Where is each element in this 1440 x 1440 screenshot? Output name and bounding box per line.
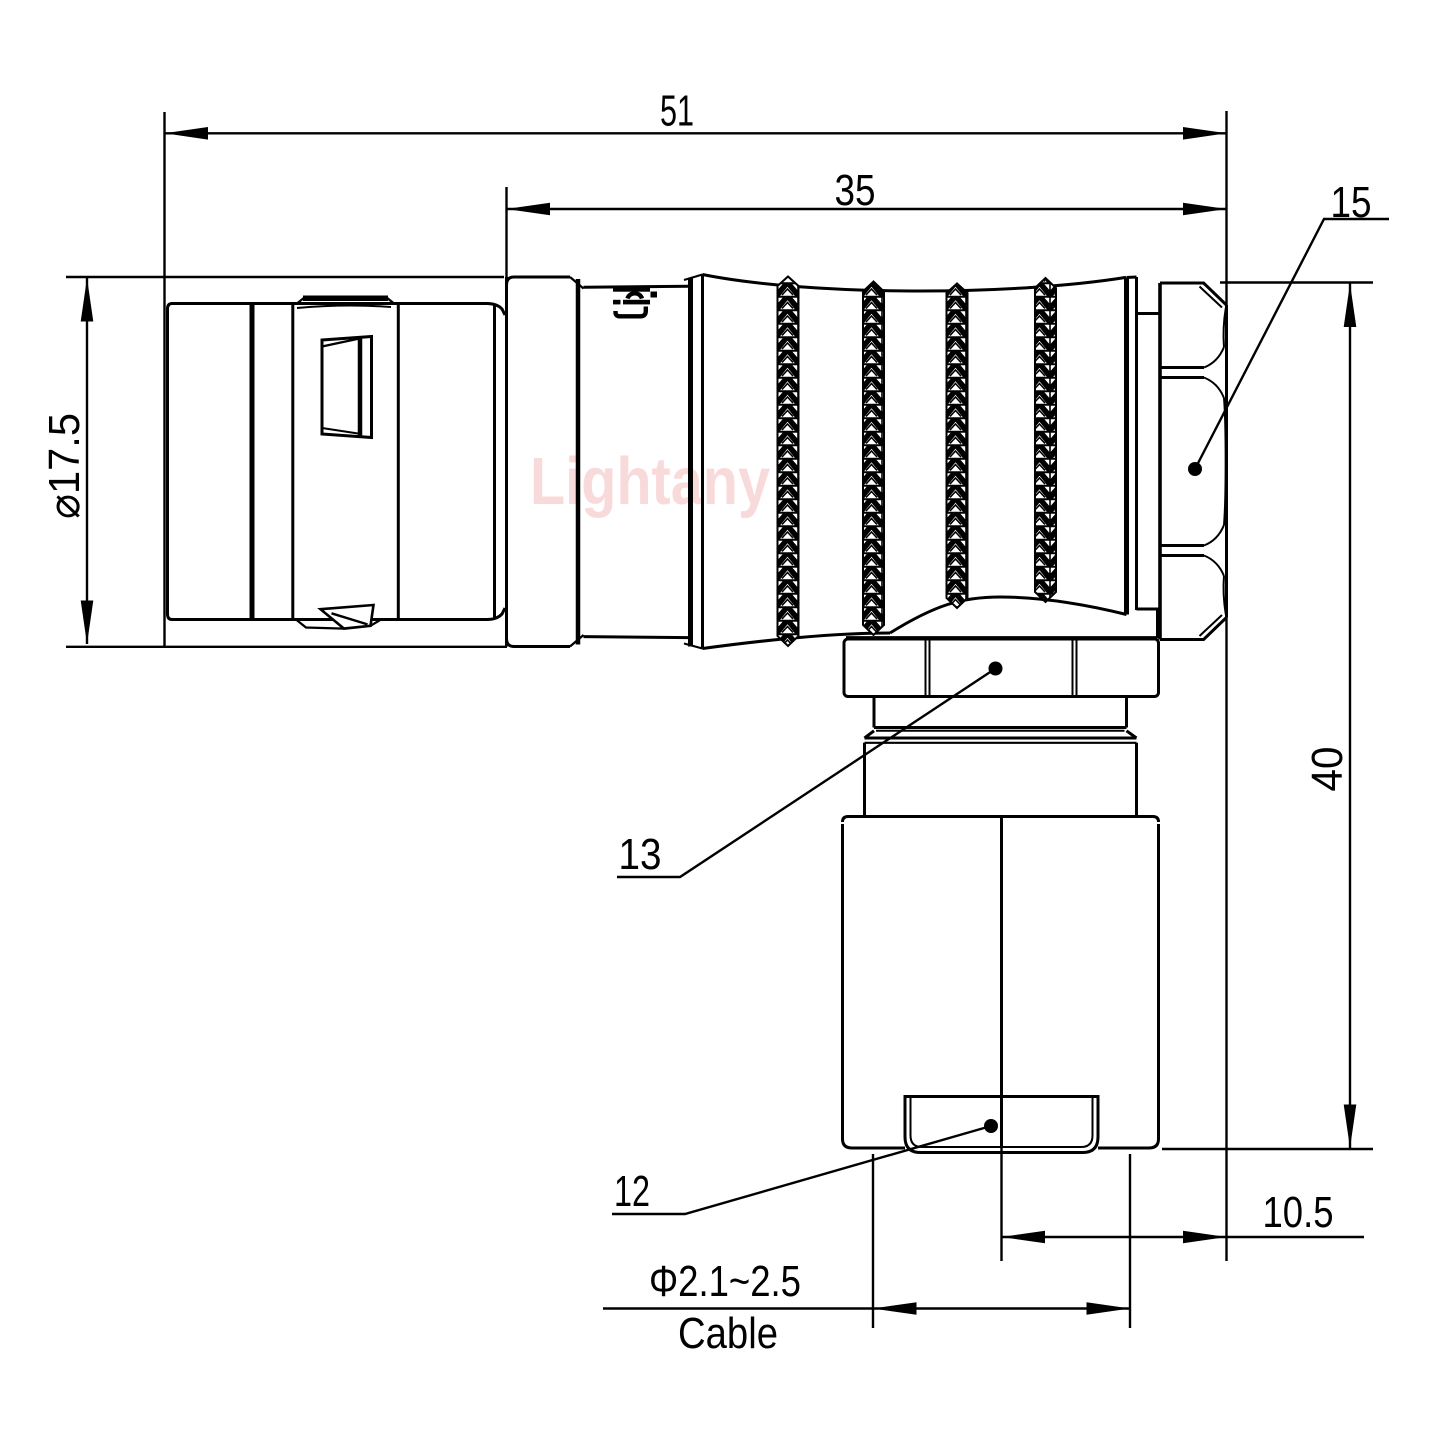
svg-text:Lightany: Lightany	[530, 444, 770, 519]
svg-text:15: 15	[1331, 178, 1372, 227]
svg-text:35: 35	[835, 166, 876, 215]
svg-text:40: 40	[1303, 747, 1352, 792]
svg-text:Cable: Cable	[678, 1309, 778, 1358]
svg-text:13: 13	[619, 830, 662, 879]
svg-text:⌀17.5: ⌀17.5	[40, 413, 89, 519]
svg-text:10.5: 10.5	[1263, 1188, 1334, 1237]
svg-text:51: 51	[660, 87, 694, 136]
svg-text:Φ2.1~2.5: Φ2.1~2.5	[649, 1257, 801, 1306]
svg-text:12: 12	[614, 1167, 650, 1216]
